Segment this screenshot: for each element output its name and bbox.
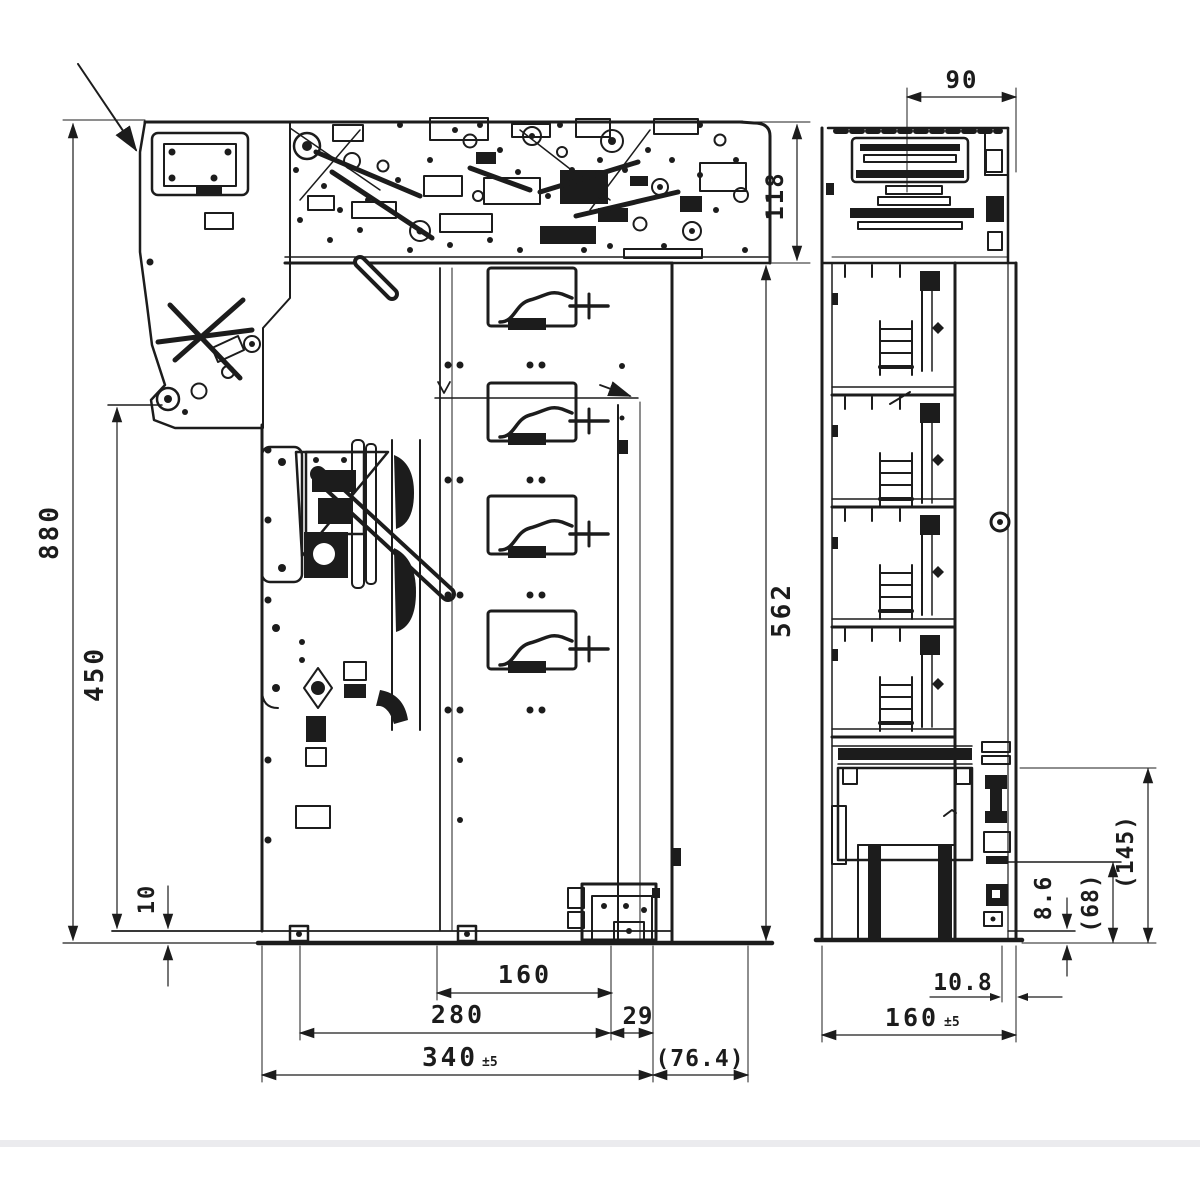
front-base-details <box>290 884 660 941</box>
side-head-block <box>826 131 1004 250</box>
dim-front-body-height: 562 <box>767 582 797 638</box>
dim-side-step-height: 8.6 <box>1031 876 1057 921</box>
front-mid-details <box>262 268 681 940</box>
dim-side-foot-offset: 10.8 <box>933 970 992 996</box>
side-view: 90 (145) (68) 8.6 10.8 160 ±5 <box>816 66 1156 1042</box>
dim-front-chute-width: 160 <box>498 960 552 989</box>
side-hopper <box>832 742 1010 940</box>
leader-arrow <box>78 64 136 150</box>
coin-module <box>488 268 608 330</box>
side-compartments <box>832 265 1009 737</box>
compartment <box>832 509 944 619</box>
compartment <box>832 397 944 507</box>
front-left-assembly <box>108 122 290 428</box>
compartment <box>832 265 944 375</box>
front-view: 880 450 10 118 562 160 280 29 340 ±5 (76… <box>35 64 810 1082</box>
dim-front-mounting-width: 280 <box>431 1000 485 1029</box>
notch-leader-arrow <box>600 385 630 396</box>
coin-module <box>488 383 608 445</box>
dim-side-depth: 160 <box>885 1003 939 1032</box>
dim-front-head-height: 118 <box>761 171 789 220</box>
technical-drawing-page: 880 450 10 118 562 160 280 29 340 ±5 (76… <box>0 0 1200 1200</box>
coin-module <box>488 611 608 673</box>
dim-side-ref-68: (68) <box>1078 873 1104 932</box>
dim-front-base-lip: 10 <box>135 884 160 915</box>
dim-front-offset: 29 <box>623 1002 654 1030</box>
compartment <box>832 629 944 731</box>
dim-side-depth-tol: ±5 <box>944 1015 960 1030</box>
front-coin-modules <box>445 268 609 714</box>
page-divider <box>0 1140 1200 1147</box>
engineering-drawing: 880 450 10 118 562 160 280 29 340 ±5 (76… <box>0 0 1200 1200</box>
dim-front-overall-height: 880 <box>35 504 65 560</box>
dim-front-overall-width: 340 <box>422 1043 478 1073</box>
front-outline <box>63 120 772 943</box>
dim-front-protrusion: (76.4) <box>655 1046 744 1072</box>
coin-module <box>488 496 608 558</box>
dim-front-overall-width-tol: ±5 <box>482 1055 498 1070</box>
dim-side-ref-145: (145) <box>1113 815 1139 889</box>
dim-side-top-width: 90 <box>946 66 979 94</box>
dim-front-inner-height: 450 <box>80 646 110 702</box>
